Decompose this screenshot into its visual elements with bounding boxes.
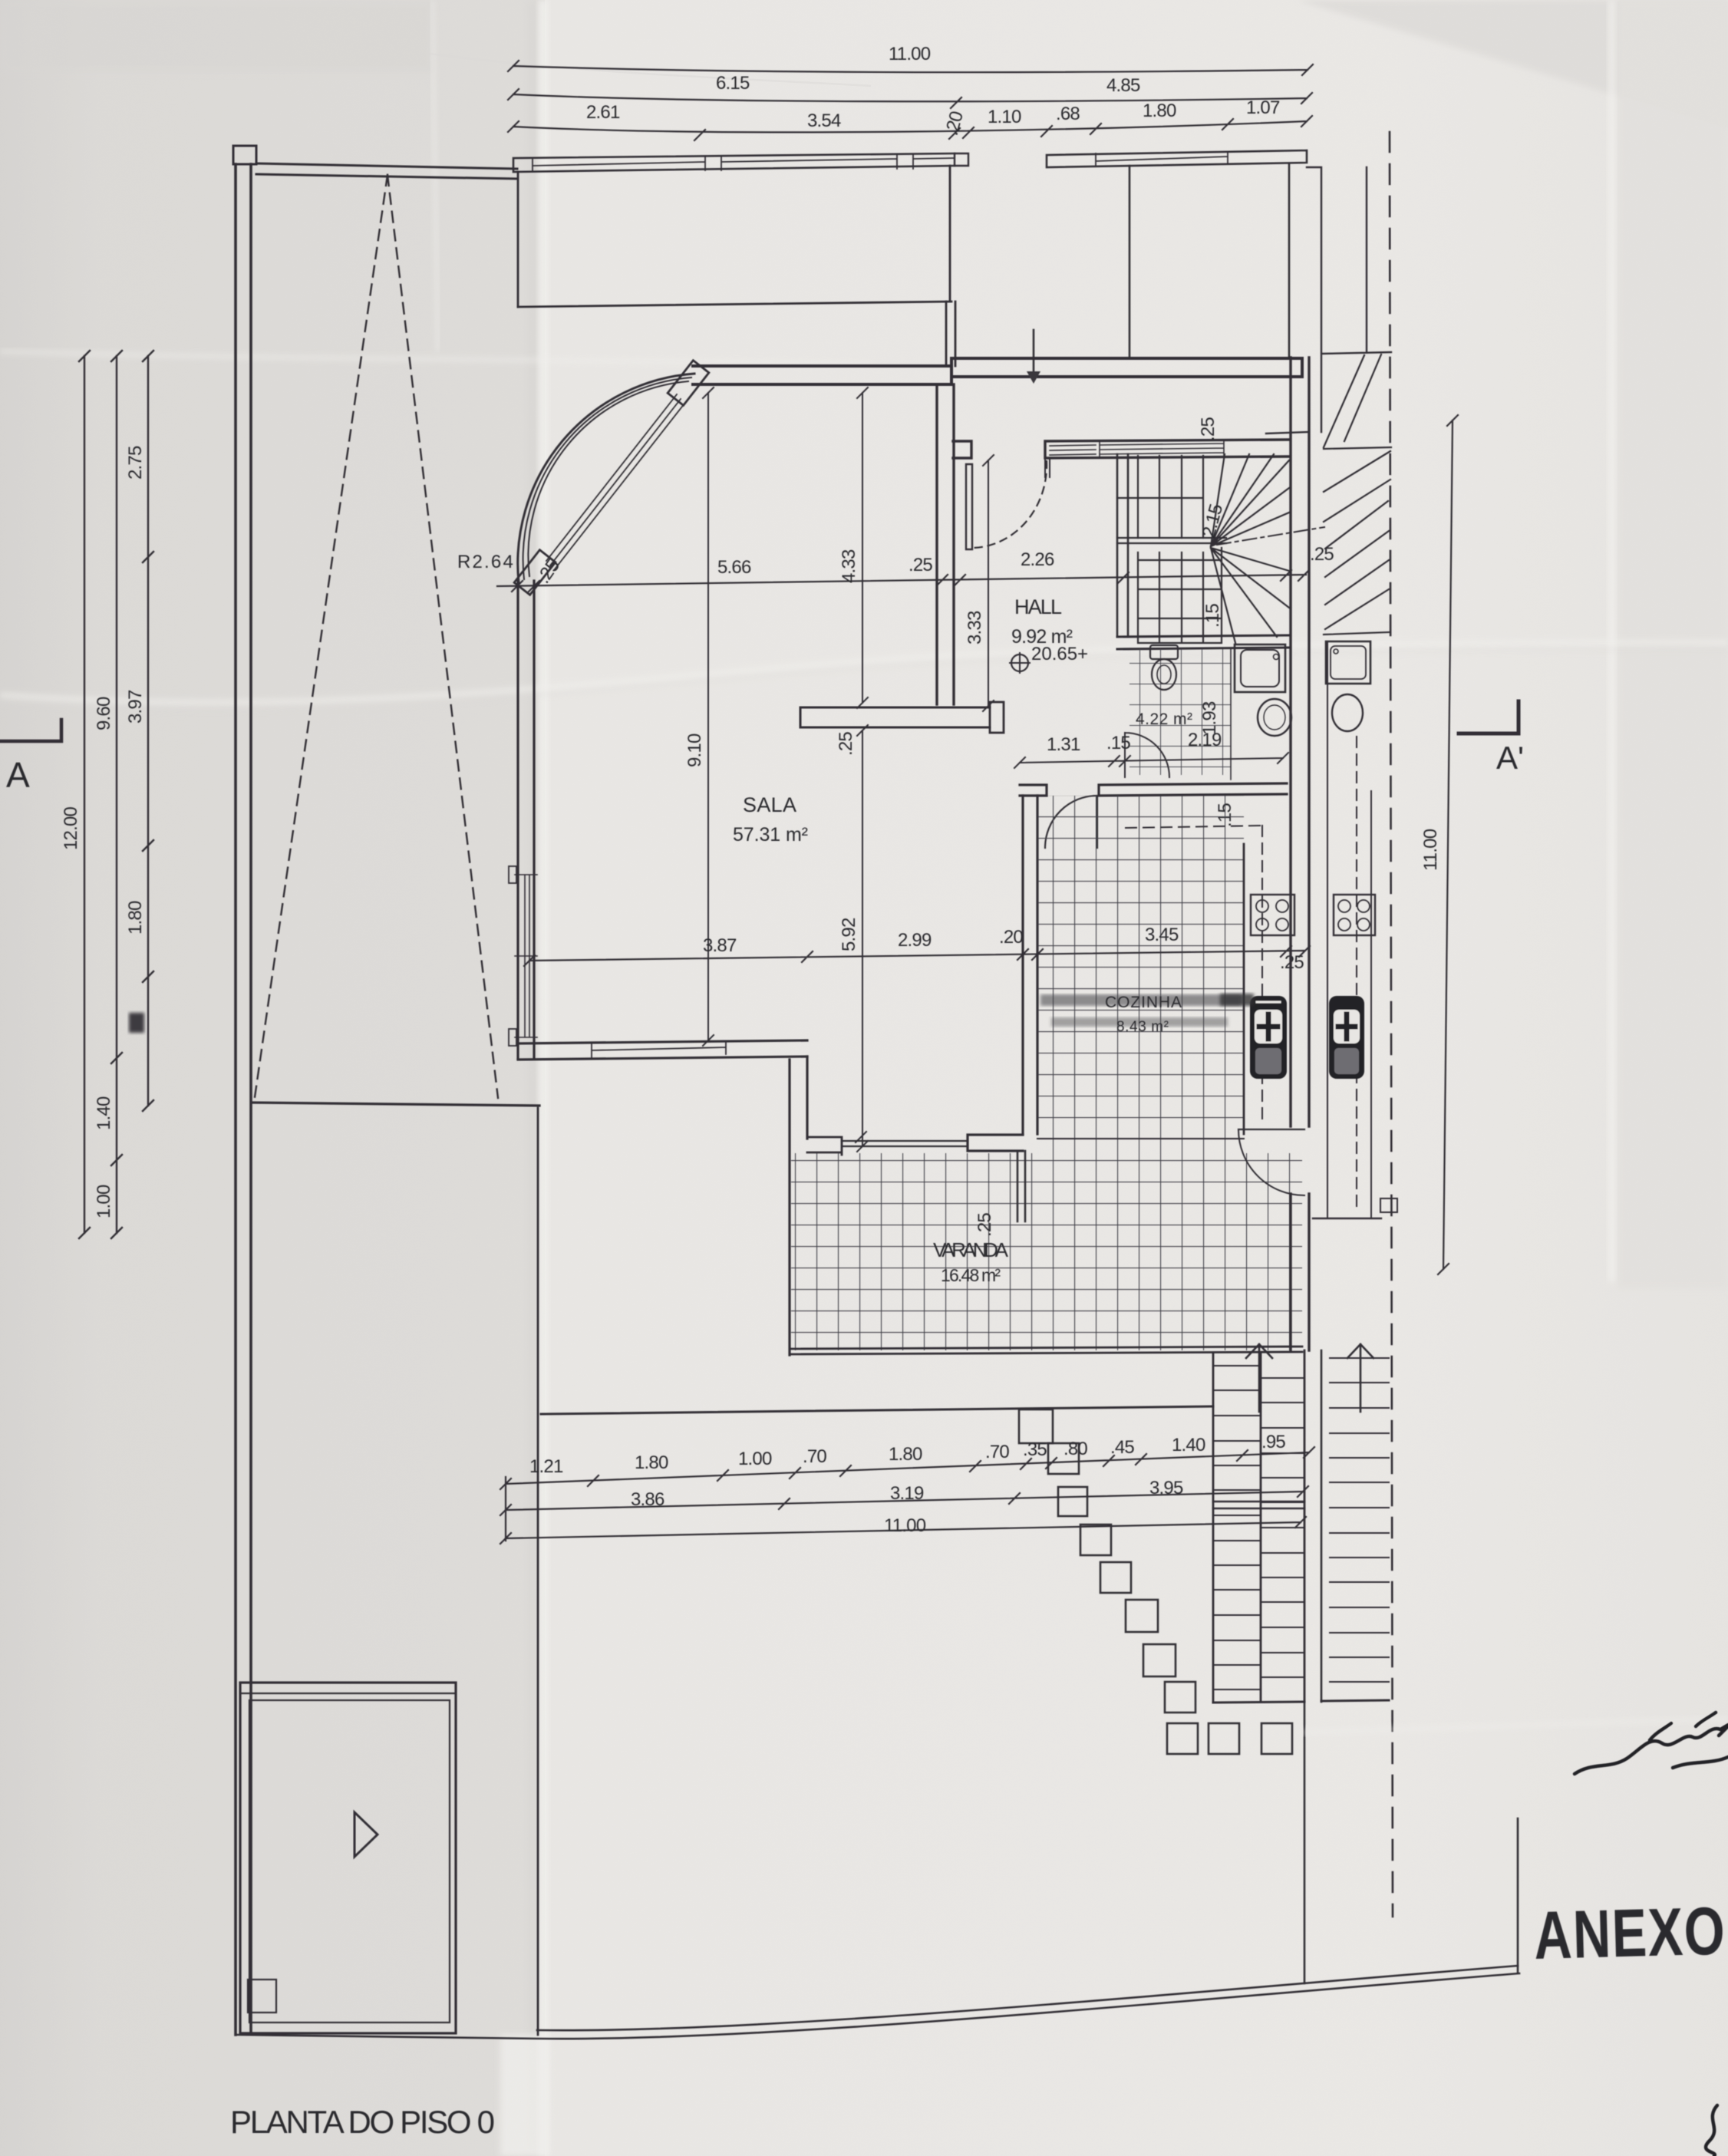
svg-text:.35: .35 xyxy=(1023,1439,1047,1460)
svg-text:.15: .15 xyxy=(1202,604,1223,628)
svg-text:2.26: 2.26 xyxy=(1021,549,1054,570)
svg-text:.25: .25 xyxy=(974,1213,995,1237)
svg-text:.25: .25 xyxy=(1198,417,1219,441)
svg-text:ANEXO: ANEXO xyxy=(1533,1892,1727,1973)
svg-text:.70: .70 xyxy=(803,1446,826,1467)
svg-text:1.93: 1.93 xyxy=(1199,701,1220,735)
svg-text:SALA: SALA xyxy=(743,793,796,816)
svg-text:20.65+: 20.65+ xyxy=(1031,644,1088,664)
svg-text:.80: .80 xyxy=(1064,1439,1087,1459)
svg-text:.20: .20 xyxy=(999,927,1023,948)
svg-text:11.00: 11.00 xyxy=(889,44,931,64)
svg-text:VARANDA: VARANDA xyxy=(933,1238,1009,1261)
svg-text:3.19: 3.19 xyxy=(890,1483,924,1504)
svg-text:.45: .45 xyxy=(1110,1437,1134,1458)
svg-text:1.40: 1.40 xyxy=(1172,1435,1205,1455)
svg-text:.15: .15 xyxy=(1106,733,1130,753)
svg-text:12.00: 12.00 xyxy=(61,806,81,850)
svg-text:3.33: 3.33 xyxy=(965,611,985,644)
svg-text:9.10: 9.10 xyxy=(684,734,705,767)
svg-text:8.43 m²: 8.43 m² xyxy=(1116,1019,1169,1035)
svg-text:3.95: 3.95 xyxy=(1149,1478,1183,1498)
svg-text:2.75: 2.75 xyxy=(125,446,146,480)
svg-text:HALL: HALL xyxy=(1014,595,1062,618)
svg-text:4.33: 4.33 xyxy=(839,549,859,583)
svg-text:5.92: 5.92 xyxy=(839,918,859,951)
svg-text:3.45: 3.45 xyxy=(1145,925,1179,945)
svg-text:R2.64: R2.64 xyxy=(457,552,513,572)
svg-text:11.00: 11.00 xyxy=(1420,829,1441,871)
svg-text:.25: .25 xyxy=(1280,952,1304,973)
svg-text:57.31 m²: 57.31 m² xyxy=(733,824,808,846)
svg-text:PLANTA DO PISO 0: PLANTA DO PISO 0 xyxy=(230,2104,497,2140)
svg-text:6.15: 6.15 xyxy=(716,73,750,94)
svg-text:1.21: 1.21 xyxy=(529,1456,563,1477)
svg-text:A: A xyxy=(6,755,30,795)
svg-text:9.60: 9.60 xyxy=(94,697,114,730)
svg-text:3.86: 3.86 xyxy=(631,1489,664,1510)
svg-text:1.80: 1.80 xyxy=(889,1444,922,1465)
svg-text:.25: .25 xyxy=(836,732,856,756)
svg-text:1.80: 1.80 xyxy=(635,1452,668,1473)
svg-text:3.87: 3.87 xyxy=(703,935,737,956)
svg-text:.25: .25 xyxy=(909,555,932,575)
svg-text:4.22 m²: 4.22 m² xyxy=(1136,710,1192,728)
svg-text:1.10: 1.10 xyxy=(988,107,1021,127)
svg-text:1.80: 1.80 xyxy=(1143,101,1176,121)
svg-text:.70: .70 xyxy=(985,1442,1009,1462)
svg-text:1.40: 1.40 xyxy=(94,1096,114,1130)
svg-text:3.97: 3.97 xyxy=(125,690,146,724)
svg-text:1.80: 1.80 xyxy=(125,901,146,935)
svg-text:COZINHA: COZINHA xyxy=(1105,994,1182,1011)
svg-text:.95: .95 xyxy=(1261,1432,1285,1452)
svg-text:2.99: 2.99 xyxy=(898,930,932,951)
svg-text:1.07: 1.07 xyxy=(1246,97,1280,118)
svg-text:4.85: 4.85 xyxy=(1106,75,1140,96)
svg-text:11.00: 11.00 xyxy=(884,1515,926,1536)
svg-text:1.00: 1.00 xyxy=(738,1449,772,1469)
svg-text:5.66: 5.66 xyxy=(717,557,751,578)
svg-text:16.48 m²: 16.48 m² xyxy=(941,1265,1001,1285)
svg-text:.25: .25 xyxy=(1310,544,1334,565)
svg-text:A': A' xyxy=(1496,740,1524,776)
svg-text:.68: .68 xyxy=(1056,104,1080,124)
svg-text:1.00: 1.00 xyxy=(94,1185,114,1218)
svg-text:2.61: 2.61 xyxy=(586,102,620,123)
svg-text:3.54: 3.54 xyxy=(807,110,841,131)
svg-text:1.31: 1.31 xyxy=(1047,734,1080,755)
